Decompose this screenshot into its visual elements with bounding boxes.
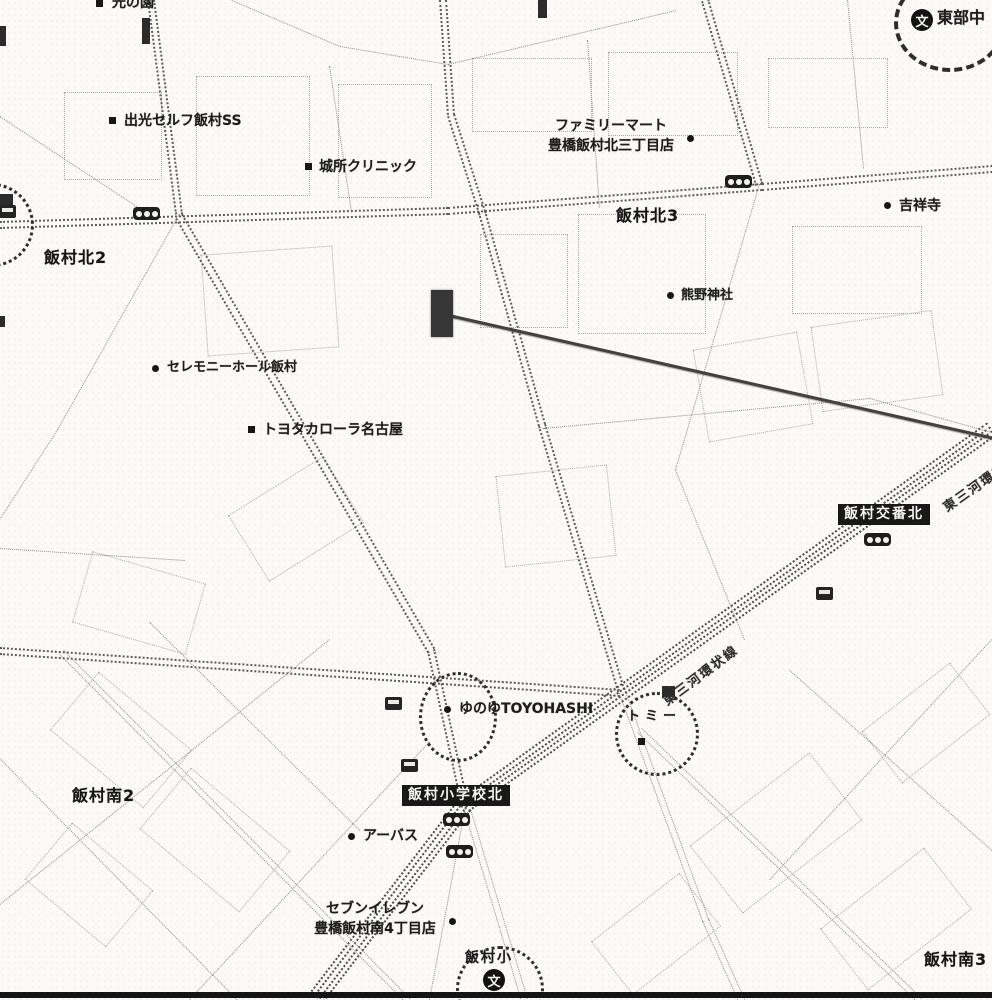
city-block [139, 768, 290, 913]
target-building-marker [431, 290, 453, 337]
school-symbol-icon: 文 [483, 969, 505, 991]
poi-label: セブンイレブン 豊橋飯村南4丁目店 [299, 899, 451, 940]
poi-marker [109, 117, 116, 124]
poi-marker [96, 0, 103, 7]
poi-marker [305, 163, 312, 170]
poi-label: トヨタカローラ名古屋 [263, 420, 403, 440]
traffic-light-icon [725, 175, 752, 188]
highlight-circle [615, 692, 699, 776]
city-block [196, 76, 310, 196]
traffic-light-icon [864, 533, 891, 546]
poi-label: セレモニーホール飯村 [167, 359, 297, 378]
poi-marker [444, 706, 451, 713]
city-block [591, 873, 721, 996]
area-label: 飯村北2 [44, 246, 107, 269]
scan-ink-smudge [538, 0, 547, 18]
intersection-sign: 飯村小学校北 [402, 785, 510, 806]
city-block [480, 234, 568, 328]
city-block [792, 226, 922, 314]
intersection-sign: 飯村交番北 [838, 504, 930, 525]
poi-label: トミー [627, 708, 681, 727]
area-label: 飯村南3 [924, 948, 987, 971]
school-symbol-icon: 文 [911, 9, 933, 31]
bus-stop-icon [401, 759, 418, 772]
city-block [862, 663, 991, 784]
map-frame-bottom-edge [0, 992, 992, 998]
scan-ink-smudge [0, 26, 6, 46]
bus-stop-icon [0, 205, 16, 218]
city-block [811, 310, 944, 412]
road-line [675, 470, 745, 640]
city-block [201, 246, 340, 357]
traffic-light-icon [443, 813, 470, 826]
road-line [448, 183, 762, 209]
scan-ink-smudge [0, 316, 5, 327]
area-label: 飯村北3 [616, 204, 679, 227]
poi-marker [884, 202, 891, 209]
road-line [0, 639, 330, 905]
poi-marker [638, 738, 645, 745]
poi-label: 熊野神社 [681, 287, 733, 306]
city-block [768, 58, 888, 128]
poi-marker [348, 833, 355, 840]
poi-marker [667, 292, 674, 299]
scan-ink-smudge [0, 194, 13, 205]
city-block [25, 823, 154, 948]
poi-label: 出光セルフ飯村SS [124, 111, 242, 131]
poi-label: アーバス [363, 826, 418, 846]
road-line [641, 728, 922, 999]
area-label: 飯村南2 [72, 784, 135, 807]
poi-marker [248, 426, 255, 433]
poi-label: 東部中 [937, 6, 985, 29]
bus-stop-icon [385, 697, 402, 710]
scan-ink-smudge [142, 18, 150, 44]
city-block [228, 456, 364, 581]
poi-label: ファミリーマート 豊橋飯村北三丁目店 [527, 116, 695, 157]
city-block [72, 551, 206, 655]
traffic-light-icon [133, 207, 160, 220]
city-block [690, 752, 863, 913]
city-block [578, 214, 706, 334]
road-line [0, 429, 58, 520]
poi-label: 城所クリニック [319, 157, 417, 177]
bus-stop-icon [816, 587, 833, 600]
road-line [340, 46, 448, 65]
road-line [232, 0, 340, 47]
poi-label: 光の園 [112, 0, 154, 13]
road-line [708, 919, 745, 999]
traffic-light-icon [446, 845, 473, 858]
poi-label: ゆのゆTOYOHASHI [459, 699, 593, 719]
poi-label: 飯村小 [465, 948, 513, 968]
poi-label: 吉祥寺 [899, 196, 941, 216]
scanned-street-map: 文文飯村北2飯村北3飯村南2飯村南3出光セルフ飯村SS城所クリニックファミリーマ… [0, 0, 992, 1000]
city-block [338, 84, 432, 198]
poi-marker [152, 365, 159, 372]
road-line [702, 921, 739, 1000]
